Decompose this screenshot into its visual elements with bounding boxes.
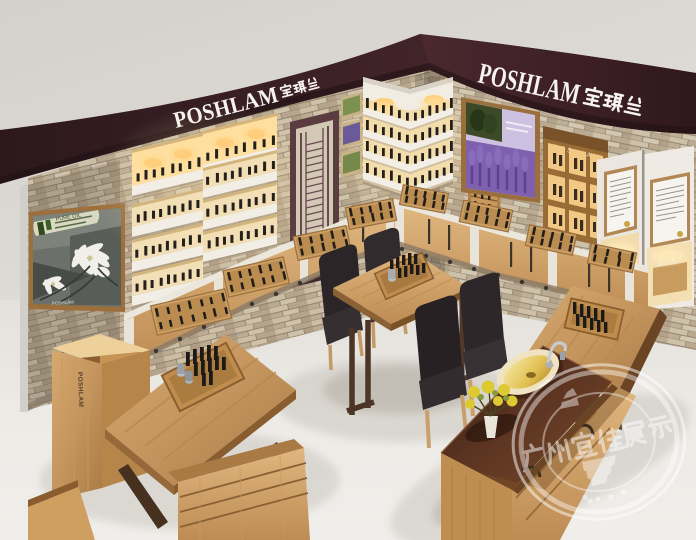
svg-text:POSHLAM: POSHLAM [76,372,84,408]
